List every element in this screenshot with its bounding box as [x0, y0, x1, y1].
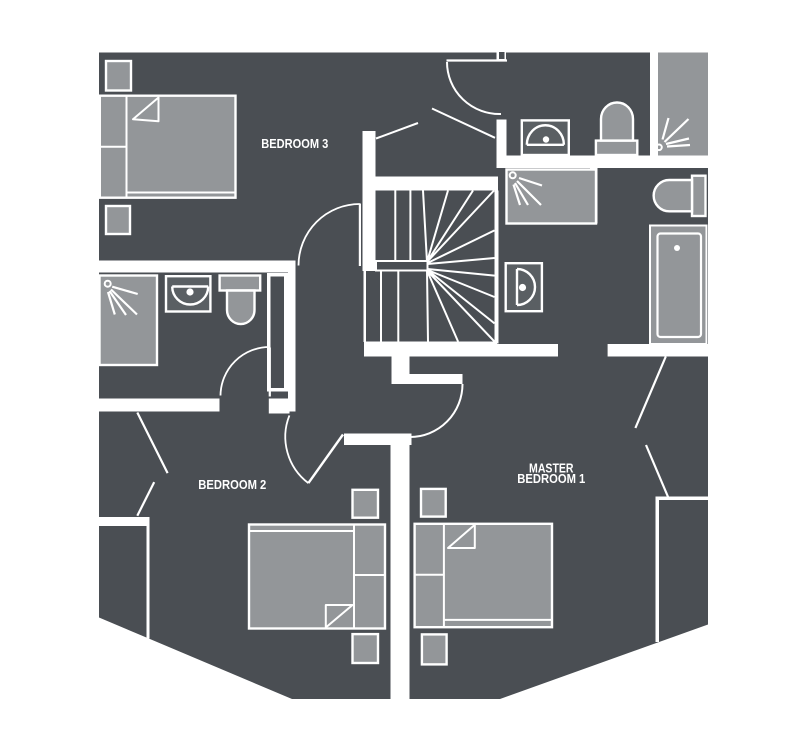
svg-text:BEDROOM 1: BEDROOM 1: [517, 472, 585, 486]
svg-text:BEDROOM 3: BEDROOM 3: [261, 137, 328, 151]
svg-text:BEDROOM 2: BEDROOM 2: [198, 478, 266, 492]
